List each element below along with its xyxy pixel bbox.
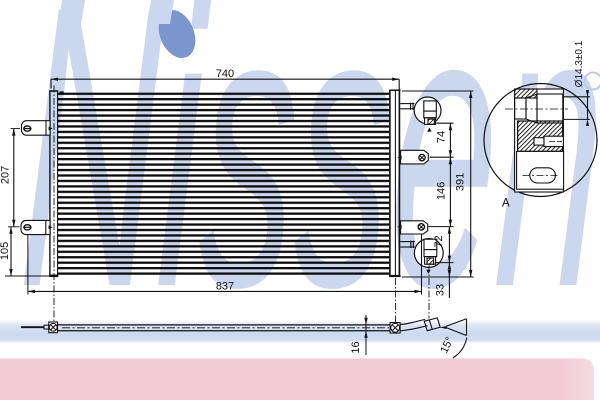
svg-text:207: 207 <box>0 166 12 184</box>
svg-text:837: 837 <box>216 281 234 293</box>
svg-text:Ø14.3±0.1: Ø14.3±0.1 <box>574 40 585 87</box>
svg-text:74: 74 <box>436 131 448 143</box>
svg-text:146: 146 <box>436 182 448 200</box>
svg-text:33: 33 <box>435 284 447 296</box>
svg-text:16: 16 <box>350 341 362 353</box>
svg-text:740: 740 <box>216 68 234 80</box>
svg-text:A: A <box>502 198 510 210</box>
svg-text:391: 391 <box>455 173 467 191</box>
svg-text:72: 72 <box>433 235 445 247</box>
svg-text:105: 105 <box>0 242 11 260</box>
